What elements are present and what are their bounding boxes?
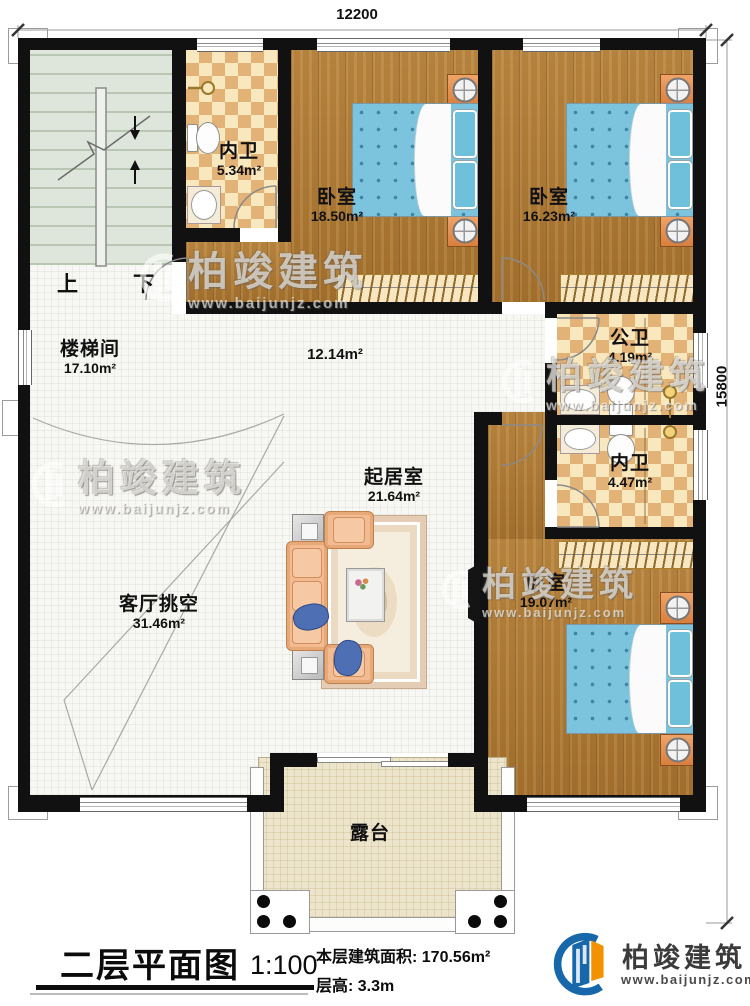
shower-fitting-icon <box>664 426 676 438</box>
void-line <box>64 700 92 790</box>
brand-name: 柏竣建筑 <box>622 936 746 975</box>
tv-icon <box>468 563 480 625</box>
title-underline <box>36 985 314 990</box>
door-arc-bath-inner <box>557 485 599 527</box>
floor-plan-canvas: 内卫 5.34m² 卧室 18.50m² 卧室 16.23m² 楼梯间 17.1… <box>0 0 750 1006</box>
door-arc-corridor-south <box>502 425 542 465</box>
door-arc-bath-public <box>557 318 599 360</box>
stair-arrow-head <box>130 160 140 170</box>
dimension-top: 12200 <box>307 6 407 23</box>
title-underline-shadow <box>30 993 308 995</box>
plan-linework <box>0 0 750 1006</box>
stair-down-label: 下 <box>133 268 154 298</box>
floor-height-text: 层高: 3.3m <box>316 972 394 996</box>
drawing-scale: 1:100 <box>250 950 318 981</box>
drawing-title: 二层平面图 <box>60 938 240 987</box>
stair-up-label: 上 <box>57 268 78 298</box>
door-arc-bedroom2 <box>502 258 544 300</box>
floor-area-text: 本层建筑面积: 170.56m² <box>316 943 490 967</box>
towel-ring-icon <box>202 82 214 94</box>
brand-logo-icon <box>540 928 616 1000</box>
door-arc-bath-top <box>234 186 276 228</box>
stair-arrow-head <box>130 130 140 140</box>
void-line <box>92 416 284 790</box>
dimension-right: 15800 <box>714 352 731 422</box>
brand-url: www.baijunjz.com <box>621 972 750 987</box>
void-curve <box>33 414 284 445</box>
void-line <box>64 462 284 700</box>
stair-rail <box>96 88 106 266</box>
shower-fitting-icon <box>664 386 676 398</box>
